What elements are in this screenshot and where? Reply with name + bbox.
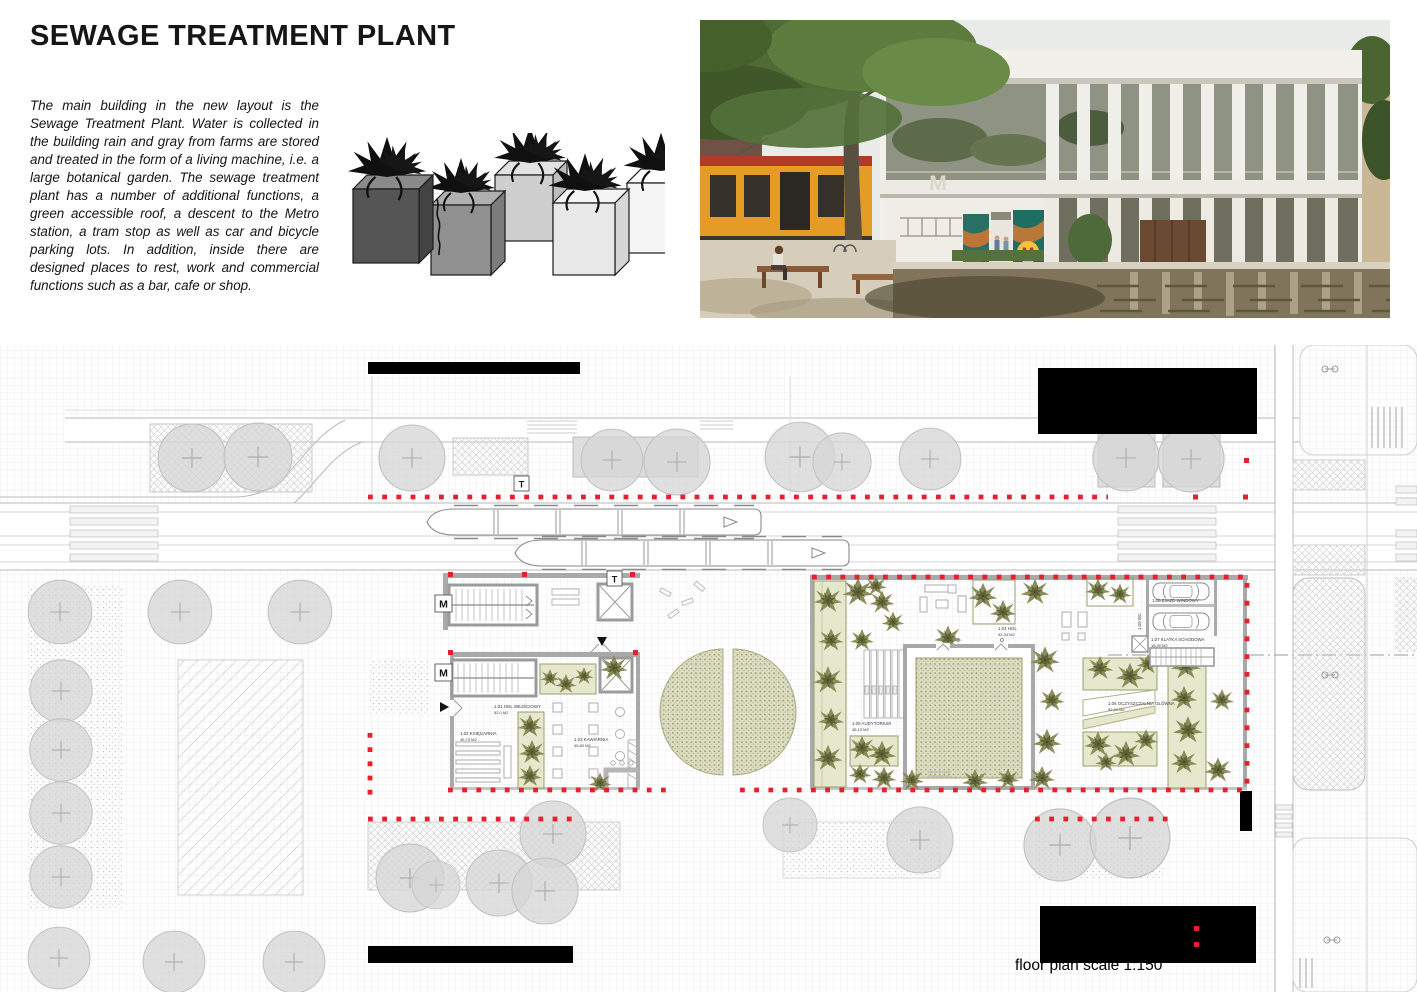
stairs-to-metro (452, 660, 536, 696)
svg-text:45,60 M2: 45,60 M2 (574, 743, 591, 748)
indoor-plant (1068, 214, 1112, 266)
inner-courtyard (905, 638, 1033, 788)
car-lift-bays (1146, 578, 1217, 636)
scale-note: floor plan scale 1:150 (1015, 957, 1162, 975)
svg-text:1.01 HOL WEJŚCIOWY: 1.01 HOL WEJŚCIOWY (494, 704, 541, 709)
tram-vehicle (427, 506, 761, 539)
planter-box (553, 189, 629, 275)
svg-text:16,40 M2: 16,40 M2 (1151, 643, 1168, 648)
page-title: SEWAGE TREATMENT PLANT (30, 20, 456, 53)
hedge-row (952, 250, 1044, 261)
metro-marker: M (439, 599, 448, 611)
elevator (598, 584, 632, 620)
svg-text:1.09 WC: 1.09 WC (1137, 613, 1142, 630)
intro-paragraph: The main building in the new layout is t… (30, 97, 319, 295)
building-render: M M (700, 20, 1390, 318)
svg-text:92,34 M2: 92,34 M2 (1108, 707, 1125, 712)
wall-metro-watermark: M (929, 172, 947, 195)
svg-text:1.05 AUDYTORIUM: 1.05 AUDYTORIUM (852, 721, 891, 726)
svg-text:1.08 ZJAZD WINDOWY: 1.08 ZJAZD WINDOWY (1152, 598, 1199, 603)
svg-text:46,10 M2: 46,10 M2 (852, 727, 869, 732)
floor-plan: M T T (0, 345, 1417, 992)
tram-vehicle (515, 537, 849, 570)
svg-text:45,70 M2: 45,70 M2 (460, 737, 477, 742)
tram-marker: T (612, 575, 618, 585)
planter-boxes-illustration (345, 133, 665, 295)
svg-text:1.07 KLATKA SCHODOWA: 1.07 KLATKA SCHODOWA (1151, 637, 1205, 642)
tram-stop-marker: T (519, 480, 525, 490)
svg-text:1.06 OCZYSZCZALNIA GŁÓWNA: 1.06 OCZYSZCZALNIA GŁÓWNA (1108, 701, 1175, 706)
presentation-board: SEWAGE TREATMENT PLANT The main building… (0, 0, 1417, 992)
svg-text:52,0 M2: 52,0 M2 (494, 710, 509, 715)
planter-box (627, 169, 665, 253)
svg-text:1.03 KAWIARNIA: 1.03 KAWIARNIA (574, 737, 608, 742)
metro-marker: M (439, 668, 448, 680)
planter-box (353, 175, 433, 263)
svg-text:1.04 HOL: 1.04 HOL (998, 626, 1017, 631)
reflecting-pool (865, 262, 1390, 318)
svg-text:92,34 M2: 92,34 M2 (998, 632, 1015, 637)
planter-box (431, 191, 505, 275)
svg-text:1.02 KSIĘGARNIA: 1.02 KSIĘGARNIA (460, 731, 497, 736)
